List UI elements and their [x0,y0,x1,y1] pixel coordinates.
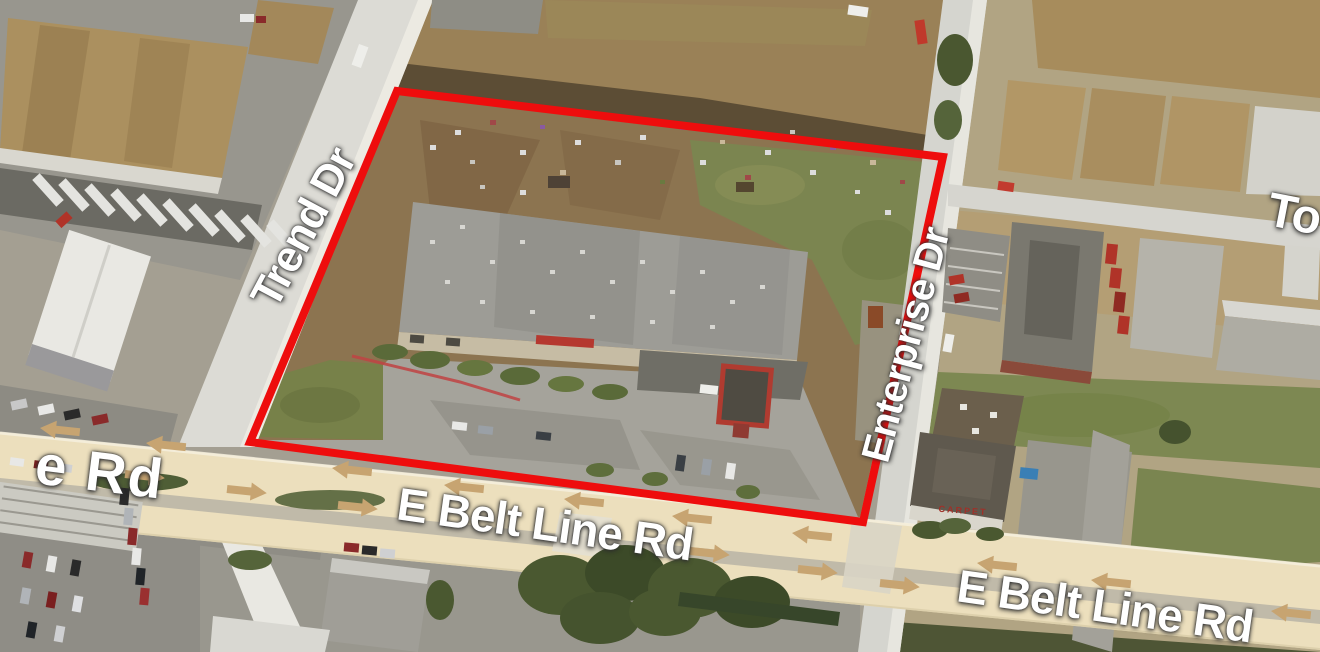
aerial-map-view[interactable]: Trend Dr Enterprise Dr E Belt Line Rd E … [0,0,1320,652]
road-label-left-partial: e Rd [32,436,167,507]
road-label-right-partial: To [1263,186,1320,243]
